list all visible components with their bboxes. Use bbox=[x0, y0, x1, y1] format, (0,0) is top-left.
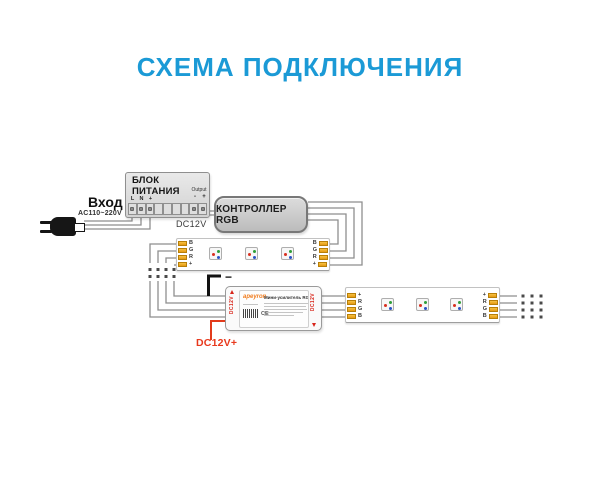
strip-pin: + bbox=[483, 293, 498, 298]
rgb-controller-label: КОНТРОЛЛЕР RGB bbox=[216, 204, 306, 226]
rgb-led-chip bbox=[381, 298, 394, 311]
dc-minus-label: − bbox=[225, 271, 232, 283]
terminal-pad bbox=[178, 248, 187, 253]
terminal-cell bbox=[146, 203, 155, 215]
rgb-amplifier: DC12V apeyron Мини-усилитель RGB CE DC12… bbox=[225, 286, 322, 331]
pin-label: R bbox=[483, 300, 487, 305]
strip-upper-left-pins: BGR+ bbox=[178, 241, 193, 267]
strip-continuation-wires bbox=[500, 296, 517, 317]
terminal-pad bbox=[178, 255, 187, 260]
terminal-label-earth: + bbox=[146, 196, 155, 202]
dc-voltage-label: DC12V bbox=[176, 219, 207, 229]
ac-input-label: Вход bbox=[88, 194, 123, 210]
strip-pin: + bbox=[178, 262, 193, 267]
strip-pin: G bbox=[483, 307, 498, 312]
terminal-cell bbox=[189, 203, 198, 215]
screw-terminal bbox=[139, 207, 143, 211]
screw-terminal bbox=[130, 207, 134, 211]
terminal-pad bbox=[178, 241, 187, 246]
pin-label: + bbox=[313, 262, 316, 267]
terminal-pad bbox=[319, 241, 328, 246]
terminal-cell bbox=[172, 203, 181, 215]
output-minus-label: - bbox=[191, 194, 199, 200]
strip-pin: + bbox=[347, 293, 362, 298]
brand-logo: apeyron bbox=[243, 294, 266, 300]
r-dot bbox=[212, 253, 215, 256]
terminal-cell bbox=[128, 203, 137, 215]
rgb-led-chip bbox=[416, 298, 429, 311]
terminal-pad bbox=[319, 255, 328, 260]
input-arrow-icon bbox=[230, 290, 234, 294]
terminal-cell bbox=[198, 203, 207, 215]
output-label: Output bbox=[186, 187, 212, 193]
g-dot bbox=[458, 301, 461, 304]
g-dot bbox=[253, 250, 256, 253]
terminal-pad bbox=[489, 307, 498, 312]
terminal-pad bbox=[488, 293, 497, 298]
strip-lower-right-pins: +RGB bbox=[483, 293, 498, 319]
b-dot bbox=[458, 307, 461, 310]
b-dot bbox=[289, 256, 292, 259]
ac-voltage-label: AC110~220V bbox=[78, 210, 122, 217]
output-plus-label: + bbox=[200, 194, 208, 200]
pin-label: + bbox=[189, 262, 192, 267]
pin-label: R bbox=[358, 300, 362, 305]
amplifier-label: apeyron Мини-усилитель RGB CE bbox=[239, 290, 309, 328]
page-title: СХЕМА ПОДКЛЮЧЕНИЯ bbox=[0, 52, 600, 83]
ac-input-wires bbox=[84, 217, 150, 229]
amplifier-to-strip-wires bbox=[322, 296, 345, 317]
terminal-cell bbox=[181, 203, 190, 215]
rgb-led-chip bbox=[209, 247, 222, 260]
terminal-strip bbox=[128, 203, 207, 215]
strip-pin: R bbox=[347, 300, 362, 305]
amp-input-port-label: DC12V bbox=[229, 296, 236, 314]
pin-label: R bbox=[313, 255, 317, 260]
g-dot bbox=[217, 250, 220, 253]
terminal-pad bbox=[347, 293, 356, 298]
strip-pin: B bbox=[178, 241, 193, 246]
terminal-pad bbox=[347, 314, 356, 319]
strip-pin: R bbox=[178, 255, 193, 260]
strip-pin: B bbox=[313, 241, 328, 246]
screw-terminal bbox=[201, 207, 205, 211]
spec-line bbox=[264, 303, 308, 304]
terminal-pad bbox=[489, 314, 498, 319]
r-dot bbox=[248, 253, 251, 256]
spec-line bbox=[264, 306, 306, 307]
terminal-pad bbox=[489, 300, 498, 305]
terminal-pad bbox=[178, 262, 187, 267]
pin-label: G bbox=[358, 307, 362, 312]
pin-label: B bbox=[483, 314, 487, 319]
amplifier-title: Мини-усилитель RGB bbox=[264, 295, 309, 300]
output-arrow-icon bbox=[312, 323, 316, 327]
screw-terminal bbox=[192, 207, 196, 211]
g-dot bbox=[289, 250, 292, 253]
barcode bbox=[243, 309, 258, 318]
power-plug-icon bbox=[50, 217, 76, 236]
pin-label: + bbox=[483, 293, 486, 298]
g-dot bbox=[424, 301, 427, 304]
b-dot bbox=[389, 307, 392, 310]
terminal-cell bbox=[154, 203, 163, 215]
rgb-led-chip bbox=[245, 247, 258, 260]
terminal-pad bbox=[347, 300, 356, 305]
dc-plus-label: DC12V+ bbox=[196, 337, 237, 349]
terminal-label-N: N bbox=[137, 196, 146, 202]
terminal-pad bbox=[318, 262, 327, 267]
strip-lower-left-pins: +RGB bbox=[347, 293, 362, 319]
strip-pin: R bbox=[313, 255, 328, 260]
terminal-pad bbox=[347, 307, 356, 312]
b-dot bbox=[253, 256, 256, 259]
strip-pin: + bbox=[313, 262, 328, 267]
pin-label: G bbox=[313, 248, 317, 253]
ce-mark: CE bbox=[261, 311, 269, 317]
screw-terminal bbox=[148, 207, 152, 211]
strip-upper-leds bbox=[209, 247, 294, 260]
terminal-label-L: L bbox=[128, 196, 137, 202]
strip-pin: R bbox=[483, 300, 498, 305]
terminal-cell bbox=[137, 203, 146, 215]
strip-pin: G bbox=[313, 248, 328, 253]
pin-label: R bbox=[189, 255, 193, 260]
pin-label: B bbox=[313, 241, 317, 246]
b-dot bbox=[217, 256, 220, 259]
rgb-led-chip bbox=[281, 247, 294, 260]
power-supply-name: БЛОК ПИТАНИЯ bbox=[132, 176, 180, 197]
strip-lower-leds bbox=[381, 298, 463, 311]
pin-label: + bbox=[358, 293, 361, 298]
strip-upper-right-pins: BGR+ bbox=[313, 241, 328, 267]
plug-neck-icon bbox=[74, 223, 85, 232]
b-dot bbox=[424, 307, 427, 310]
r-dot bbox=[453, 304, 456, 307]
minus-power-wire bbox=[209, 276, 222, 296]
pin-label: G bbox=[189, 248, 193, 253]
terminal-pad bbox=[319, 248, 328, 253]
power-supply-name-line1: БЛОК bbox=[132, 176, 180, 187]
spec-line bbox=[264, 309, 307, 310]
r-dot bbox=[384, 304, 387, 307]
pin-label: B bbox=[358, 314, 362, 319]
pin-label: B bbox=[189, 241, 193, 246]
terminal-cell bbox=[163, 203, 172, 215]
strip-pin: G bbox=[178, 248, 193, 253]
r-dot bbox=[284, 253, 287, 256]
spec-line bbox=[264, 312, 303, 313]
connection-diagram: СХЕМА ПОДКЛЮЧЕНИЯ bbox=[0, 0, 600, 480]
g-dot bbox=[389, 301, 392, 304]
strip-pin: G bbox=[347, 307, 362, 312]
strip-pin: B bbox=[483, 314, 498, 319]
amp-output-port-label: DC12V bbox=[310, 293, 317, 311]
pin-label: G bbox=[483, 307, 487, 312]
rgb-controller: КОНТРОЛЛЕР RGB bbox=[214, 196, 308, 233]
strip-pin: B bbox=[347, 314, 362, 319]
rgb-led-chip bbox=[450, 298, 463, 311]
r-dot bbox=[419, 304, 422, 307]
spec-line bbox=[243, 304, 258, 305]
